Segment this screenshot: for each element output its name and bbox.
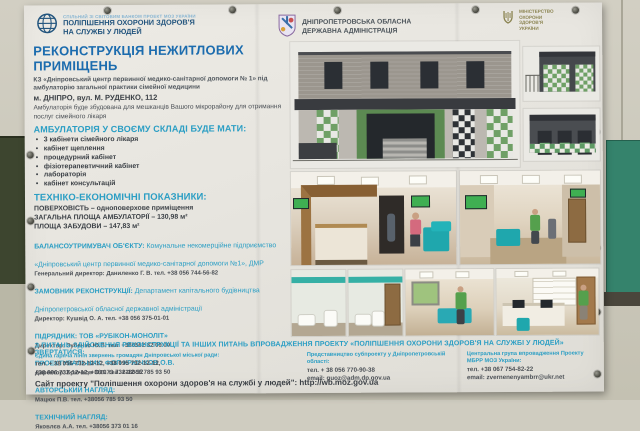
- wall-lower-left: [0, 284, 26, 400]
- interior-render-exam-room: [405, 269, 493, 335]
- ceiling-lamp: [564, 175, 582, 184]
- grommet: [27, 283, 34, 290]
- sink: [298, 314, 316, 326]
- exam-couch-teal: [438, 308, 472, 323]
- ceiling-lamp: [409, 175, 427, 184]
- oda-line2: ДЕРЖАВНА АДМІНІСТРАЦІЯ: [302, 27, 411, 36]
- ceiling-lamp: [514, 271, 528, 277]
- person-sitting: [410, 219, 421, 234]
- monitor: [541, 300, 553, 308]
- contact-line: email: zvernenenyambrr@ukr.net: [467, 373, 601, 382]
- interior-render-bathroom-2: [348, 270, 402, 336]
- party-contact: Генеральний директор: Даниленко Г. В. те…: [34, 270, 287, 277]
- window: [420, 61, 438, 88]
- worldbank-text: СПІЛЬНИЙ ЗІ СВІТОВИМ БАНКОМ ПРОЕКТ МОЗ У…: [63, 14, 196, 37]
- building-rear-elevation-image: [524, 109, 600, 161]
- person-green: [530, 215, 540, 231]
- side-building: [539, 52, 595, 92]
- doorway: [379, 196, 404, 254]
- party-customer: ЗАМОВНИК РЕКОНСТРУКЦІЇ: Департамент капі…: [34, 279, 287, 323]
- ceiling-lamp: [552, 271, 566, 277]
- person-legs: [410, 234, 420, 246]
- wall-dark-strip: [604, 292, 640, 306]
- object-address: м. ДНІПРО, вул. М. РУДЕНКО, 112: [33, 92, 286, 102]
- party-label: ЗАМОВНИК РЕКОНСТРУКЦІЇ:: [34, 287, 132, 295]
- trident-icon: [502, 9, 514, 30]
- composition-heading: АМБУЛАТОРІЯ У СВОЄМУ СКЛАДІ БУДЕ МАТИ:: [34, 123, 287, 134]
- interior-render-corridor: [460, 171, 600, 265]
- banner-header: СПІЛЬНИЙ ЗІ СВІТОВИМ БАНКОМ ПРОЕКТ МОЗ У…: [24, 7, 602, 44]
- person-legs: [457, 309, 465, 324]
- person-legs: [580, 306, 588, 320]
- building-upper-floor: [298, 51, 511, 99]
- teal-wall-stripe: [291, 277, 345, 283]
- composition-list: 3 кабінети сімейного лікаря кабінет щепл…: [34, 135, 287, 189]
- checkered-column: [453, 109, 475, 158]
- party-label: ТЕХНІЧНИЙ НАГЛЯД:: [35, 414, 108, 421]
- ceiling-lamp: [480, 175, 498, 184]
- person-legs: [531, 231, 539, 244]
- party-label: БАЛАНСОУТРИМУВАЧ ОБ'ЄКТУ:: [34, 242, 144, 250]
- bench-teal: [496, 229, 520, 246]
- project-name-line2: НА СЛУЖБІ У ЛЮДЕЙ: [63, 28, 196, 37]
- wall-teal-panel: [606, 140, 640, 294]
- ceiling-lamp: [317, 176, 335, 185]
- wood-door: [568, 199, 586, 243]
- project-website: Сайт проекту "Поліпшення охорони здоров'…: [35, 378, 378, 389]
- party-balance-holder: БАЛАНСОУТРИМУВАЧ ОБ'ЄКТУ: Комунальне нек…: [34, 234, 287, 278]
- wall-green-panel: [0, 136, 26, 286]
- window: [370, 62, 388, 89]
- tv-screen: [411, 195, 430, 207]
- page-title: РЕКОНСТРУКЦІЯ НЕЖИТЛОВИХ ПРИМІЩЕНЬ: [33, 42, 286, 73]
- interior-render-office: [496, 269, 598, 336]
- grommet: [27, 217, 34, 224]
- ramp-railing: [525, 75, 541, 92]
- moz-line4: УКРАЇНИ: [519, 25, 554, 31]
- corridor-right-wall: [562, 185, 600, 257]
- ceiling-lamp: [522, 175, 540, 184]
- party-label: ПІДРЯДНИК: ТОВ «РУБІКОН-МОНОЛІТ»: [35, 332, 168, 340]
- checkered-facade: [543, 65, 569, 92]
- coat-of-arms-icon: [277, 13, 297, 42]
- worldbank-logo-block: СПІЛЬНИЙ ЗІ СВІТОВИМ БАНКОМ ПРОЕКТ МОЗ У…: [36, 12, 196, 40]
- monitor: [513, 300, 525, 308]
- contact-hotline: Єдина гаряча лінія звернень громадян Дні…: [35, 352, 223, 377]
- grommet: [27, 151, 34, 158]
- ceiling-lamp: [419, 271, 433, 278]
- ground-line: [293, 159, 518, 161]
- list-item: кабінет консультацій: [34, 179, 287, 189]
- party-technical-supervision: ТЕХНІЧНИЙ НАГЛЯД: Яковлєв А.А. тел. +380…: [35, 405, 288, 431]
- wood-door: [384, 284, 400, 326]
- toilet: [372, 311, 385, 327]
- person-head: [412, 212, 419, 219]
- oblast-administration-block: ДНІПРОПЕТРОВСЬКА ОБЛАСНА ДЕРЖАВНА АДМІНІ…: [277, 12, 411, 42]
- wall-seam: [621, 0, 623, 140]
- ceiling: [460, 171, 600, 186]
- party-contact: Яковлєв А.А. тел. +38056 373 01 16: [35, 423, 288, 430]
- rear-building: [530, 115, 596, 153]
- building-front-elevation-image: [290, 41, 520, 168]
- interior-render-bathroom-1: [291, 270, 345, 336]
- window: [324, 62, 342, 89]
- oda-line1: ДНІПРОПЕТРОВСЬКА ОБЛАСНА: [302, 19, 411, 28]
- wall-shelves: [532, 278, 576, 306]
- entrance-stairs: [383, 138, 427, 158]
- subtitle: КЗ «Дніпровський центр первинної медико-…: [33, 75, 286, 92]
- oblast-administration-text: ДНІПРОПЕТРОВСЬКА ОБЛАСНА ДЕРЖАВНА АДМІНІ…: [302, 19, 411, 37]
- teal-wall-stripe: [348, 277, 402, 283]
- party-contact: Директор: Кушвід О. А. тел. +38 056 375-…: [35, 315, 288, 322]
- contact-central-group: Центральна група впровадження Проекту МБ…: [467, 351, 601, 383]
- person-silhouette: [548, 219, 556, 239]
- checkered-column: [487, 109, 513, 158]
- toilet: [324, 310, 338, 327]
- grommet: [28, 347, 35, 354]
- corridor-left-wall: [460, 185, 494, 257]
- indicator-line: ПЛОЩА ЗАБУДОВИ – 147,83 м²: [34, 222, 287, 232]
- tv-screen: [293, 198, 309, 209]
- window-garden-view: [411, 281, 439, 305]
- checkered-facade: [575, 65, 593, 92]
- waiting-chair: [431, 221, 451, 231]
- ministry-of-health-block: МІНІСТЕРСТВО ОХОРОНИ ЗДОРОВ'Я УКРАЇНИ: [502, 9, 554, 31]
- intro-paragraph: Амбулаторія буде збудована для мешканців…: [34, 103, 287, 121]
- moz-line1: МІНІСТЕРСТВО: [519, 9, 554, 15]
- green-sign: [570, 189, 586, 198]
- information-banner: СПІЛЬНИЙ ЗІ СВІТОВИМ БАНКОМ ПРОЕКТ МОЗ У…: [24, 2, 604, 394]
- interior-render-reception: [291, 171, 456, 265]
- window: [466, 61, 484, 88]
- ceiling: [405, 269, 493, 279]
- building-plinth: [299, 143, 337, 159]
- person-medic: [455, 292, 466, 309]
- building-side-elevation-image: [523, 47, 599, 101]
- contact-heading: Представництво субпроекту у Дніпропетров…: [307, 351, 457, 366]
- contact-heading: Центральна група впровадження Проекту МБ…: [467, 351, 601, 366]
- indicators-heading: ТЕХНІКО-ЕКОНОМІЧНІ ПОКАЗНИКИ:: [34, 191, 287, 203]
- ministry-text: МІНІСТЕРСТВО ОХОРОНИ ЗДОРОВ'Я УКРАЇНИ: [519, 9, 554, 31]
- ceiling-lamp: [455, 271, 469, 278]
- contact-line: +38 096 732-12-12, +38 073 732-12-12: [35, 368, 223, 377]
- contacts-row: Єдина гаряча лінія звернень громадян Дні…: [35, 351, 601, 380]
- office-chair: [517, 318, 530, 331]
- checkered-base: [530, 144, 596, 153]
- reception-desk: [315, 224, 367, 265]
- person-silhouette: [387, 214, 395, 242]
- person-green: [578, 291, 588, 306]
- sink: [355, 314, 372, 326]
- tv-screen: [465, 195, 487, 209]
- globe-icon: [36, 12, 58, 39]
